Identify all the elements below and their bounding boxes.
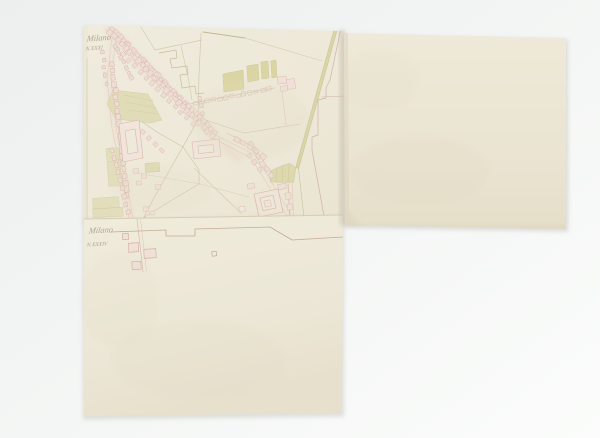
svg-text:N.XXXIV: N.XXXIV [85,241,108,248]
svg-text:Milano: Milano [87,224,113,235]
svg-text:Milano: Milano [85,32,111,44]
